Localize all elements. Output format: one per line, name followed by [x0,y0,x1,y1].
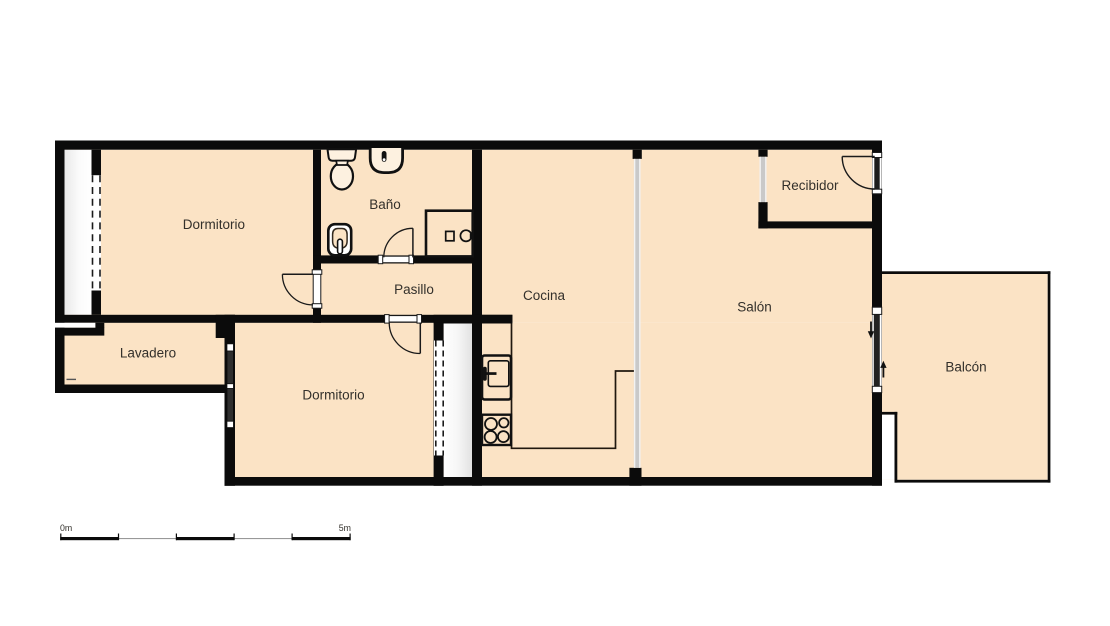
svg-text:Pasillo: Pasillo [394,282,434,297]
svg-text:Lavadero: Lavadero [120,346,176,361]
svg-text:Recibidor: Recibidor [781,178,839,193]
svg-text:Balcón: Balcón [945,360,986,375]
svg-text:Dormitorio: Dormitorio [183,217,245,232]
svg-text:Baño: Baño [369,197,401,212]
svg-text:Cocina: Cocina [523,288,566,303]
svg-text:5m: 5m [339,523,351,533]
svg-text:0m: 0m [60,523,72,533]
svg-text:Dormitorio: Dormitorio [302,388,364,403]
svg-text:Salón: Salón [737,300,772,315]
